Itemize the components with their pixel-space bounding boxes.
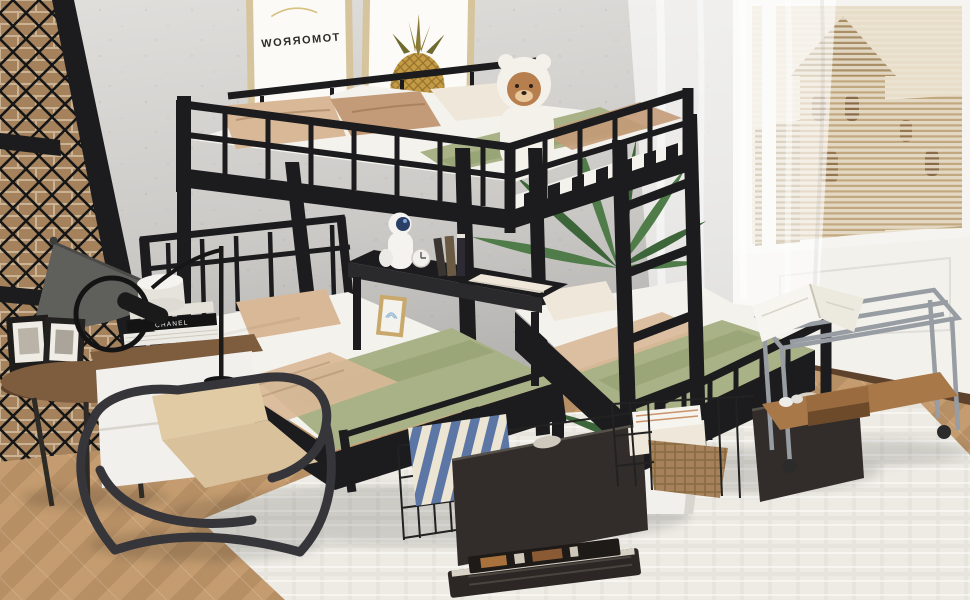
shelf-books [433,234,465,276]
cart-caster [937,425,951,439]
alarm-clock [412,249,430,267]
wicker-basket [648,440,728,498]
astronaut-visor [396,217,410,231]
cart-caster [783,459,797,473]
product-photo-triple-bunk-bed: TOMORROW [0,0,970,600]
astronaut-lantern [379,249,393,267]
mini-picture-frame [376,295,407,338]
scene-canvas: TOMORROW [0,0,970,600]
